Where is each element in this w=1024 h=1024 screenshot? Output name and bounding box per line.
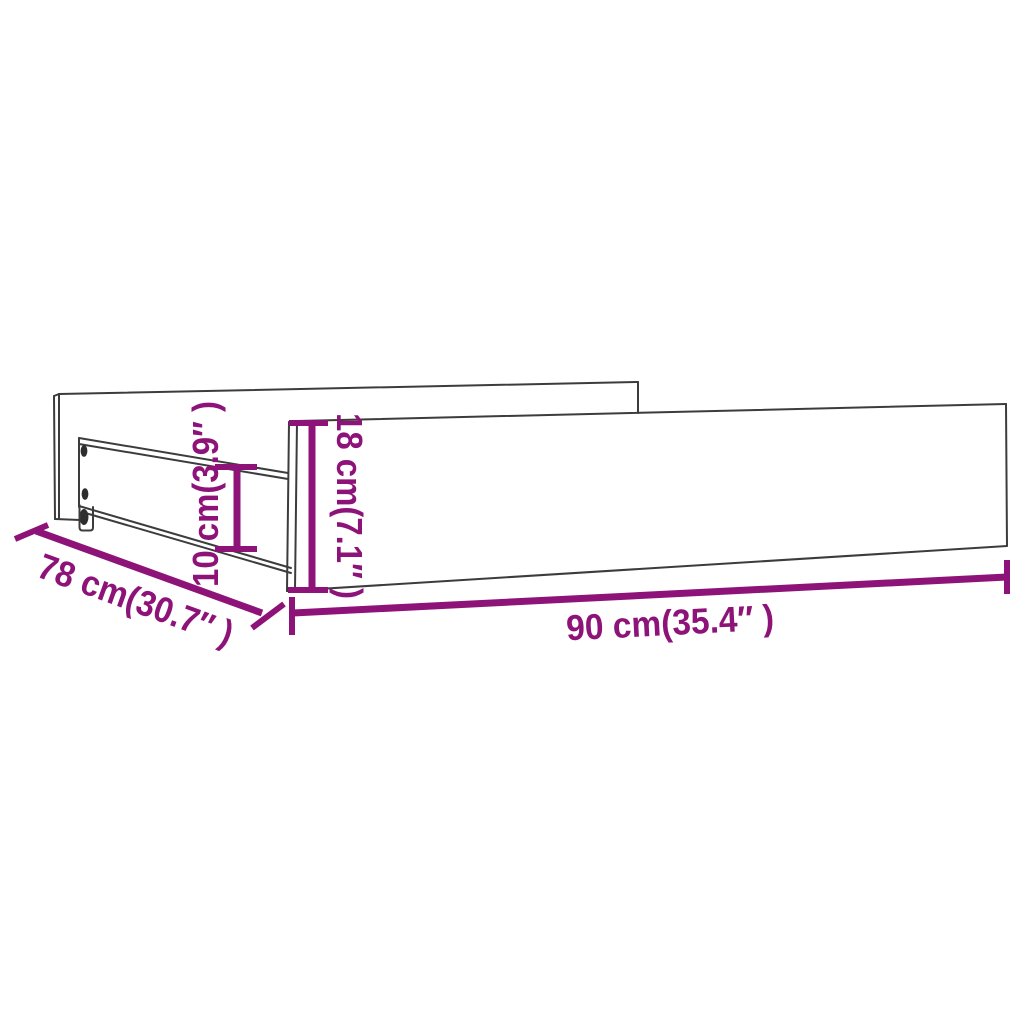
screw-icon: [82, 488, 89, 500]
screw-icon: [81, 445, 88, 457]
back-panel-bottom-edge: [55, 519, 80, 520]
dimension-length: 90 cm(35.4″ ): [292, 560, 1007, 648]
back-panel-left-outer-edge: [54, 396, 55, 519]
dimension-front-height-label: 18 cm(7.1″ ): [329, 413, 370, 599]
front-panel-left-outer-edge: [287, 422, 289, 591]
front-panel-left-inner-edge: [295, 421, 297, 590]
front-panel-right-edge: [1006, 404, 1007, 546]
side-panel-top-inner-edge: [79, 444, 288, 479]
back-panel-top-edge: [59, 382, 638, 394]
dimension-length-label: 90 cm(35.4″ ): [565, 597, 775, 649]
dimension-front-height: 18 cm(7.1″ ): [288, 413, 370, 599]
drawer-dimension-diagram: 18 cm(7.1″ ) 10 cm(3.9″ ) 78 cm(30.7″ ) …: [0, 0, 1024, 1024]
caster-wheel-icon: [80, 509, 89, 525]
front-panel-top-edge: [297, 404, 1006, 421]
front-panel: [287, 404, 1007, 591]
dimension-depth: 78 cm(30.7″ ): [15, 525, 284, 654]
dimension-side-height-label: 10 cm(3.9″ ): [185, 401, 226, 587]
product-diagram-canvas: 18 cm(7.1″ ) 10 cm(3.9″ ) 78 cm(30.7″ ) …: [0, 0, 1024, 1024]
